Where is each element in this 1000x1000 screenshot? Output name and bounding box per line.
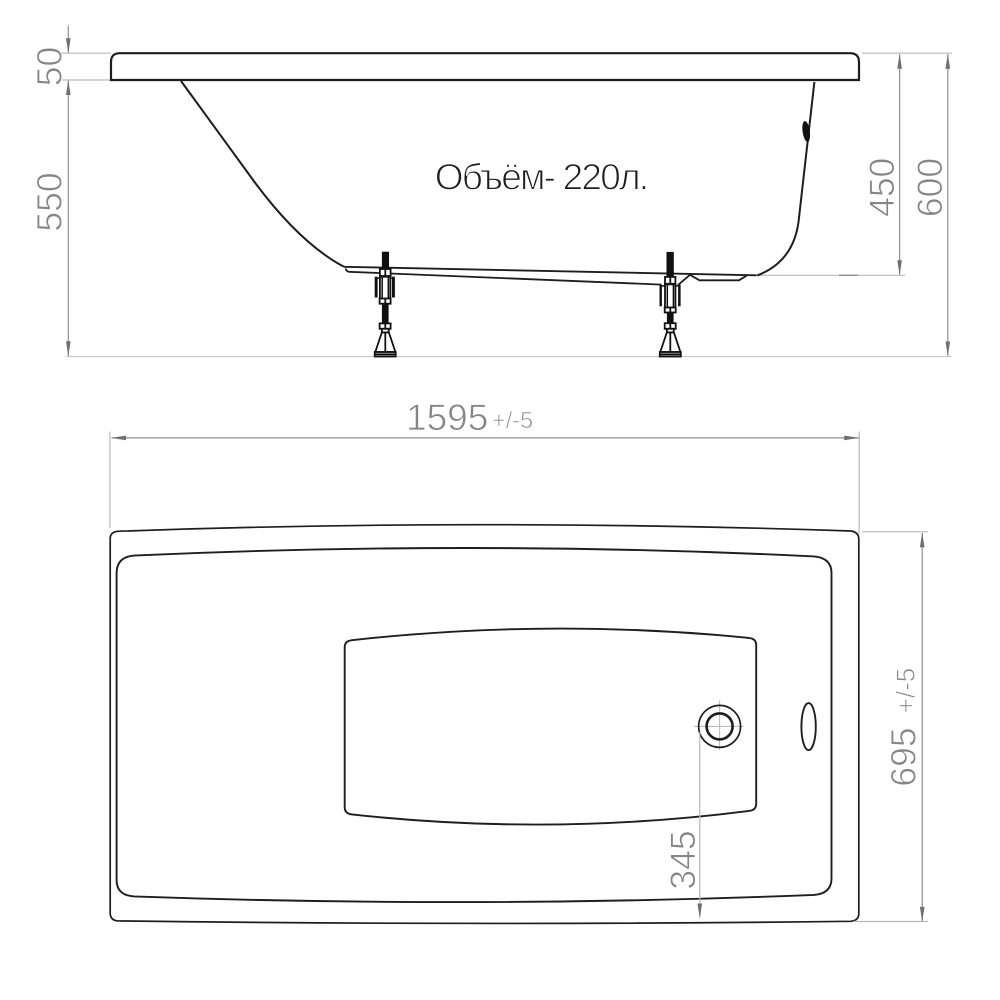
svg-text:50: 50: [29, 47, 69, 86]
svg-text:+/-5: +/-5: [891, 668, 921, 714]
svg-text:+/-5: +/-5: [492, 407, 533, 433]
svg-text:1595: 1595: [406, 397, 488, 438]
svg-text:Объём- 220л.: Объём- 220л.: [435, 157, 648, 198]
svg-text:695: 695: [884, 727, 924, 786]
svg-text:600: 600: [910, 158, 950, 217]
svg-text:550: 550: [29, 172, 69, 231]
svg-text:345: 345: [663, 830, 703, 889]
svg-text:450: 450: [862, 158, 902, 217]
